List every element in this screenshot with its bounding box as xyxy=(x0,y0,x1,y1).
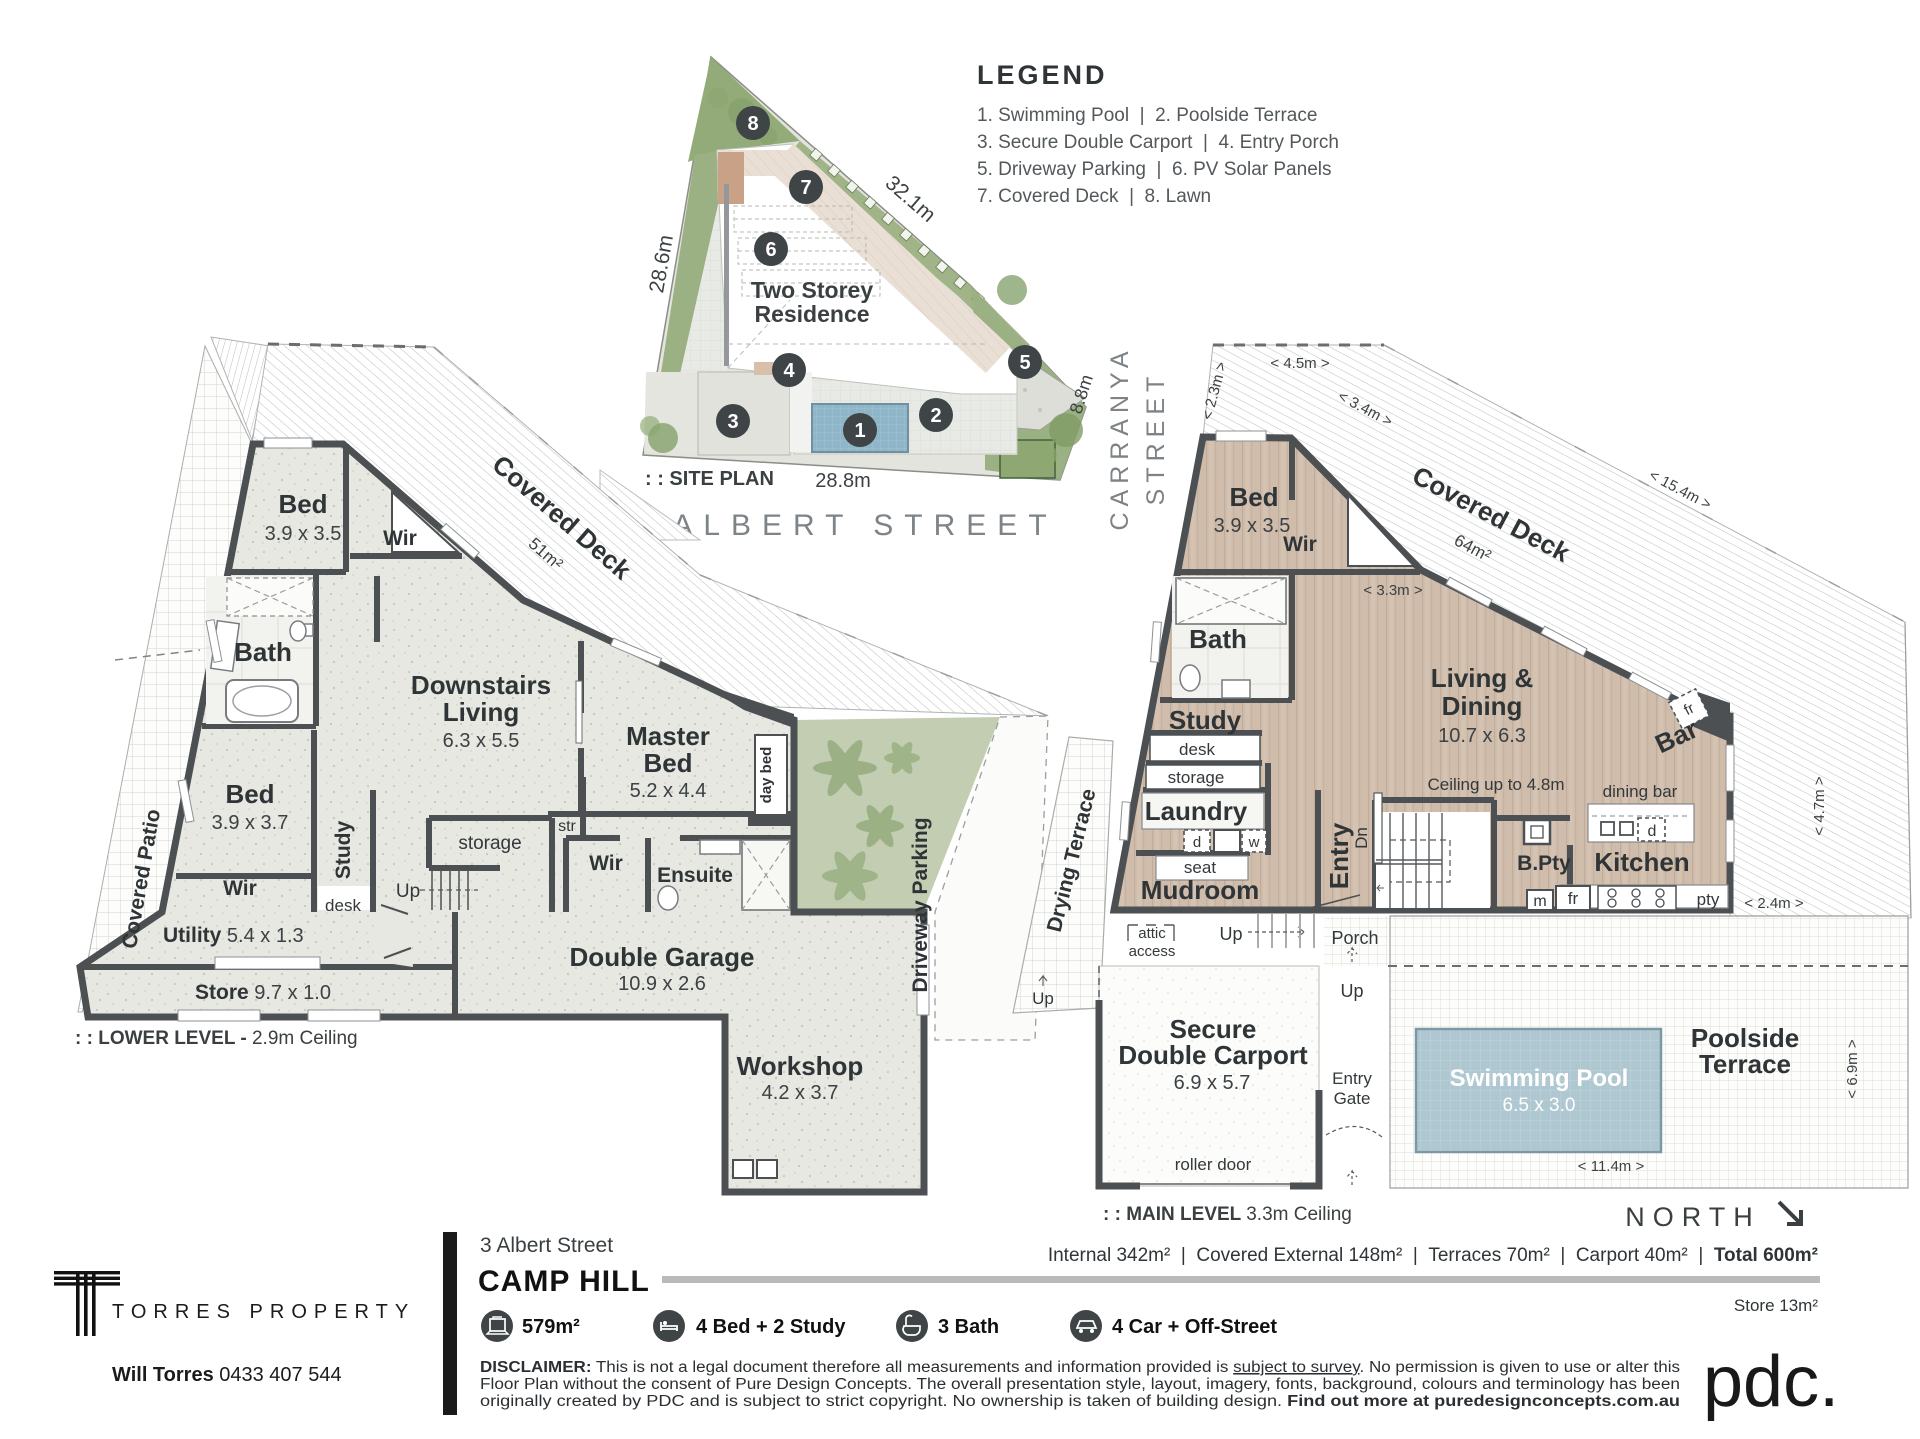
svg-text:Gate: Gate xyxy=(1334,1089,1371,1108)
svg-text:CAMP HILL: CAMP HILL xyxy=(478,1265,650,1298)
svg-text:Study: Study xyxy=(1169,705,1242,735)
svg-text:pdc.: pdc. xyxy=(1703,1342,1839,1422)
svg-text:Wir: Wir xyxy=(1283,533,1317,556)
svg-text:LEGEND: LEGEND xyxy=(977,60,1108,90)
svg-text:< 4.5m >: < 4.5m > xyxy=(1270,355,1329,372)
svg-text:Ensuite: Ensuite xyxy=(657,864,733,887)
svg-text:Internal 342m² | Covered Ext: Internal 342m² | Covered External 148m² … xyxy=(1048,1245,1818,1266)
svg-text:: : MAIN LEVEL 3.3m Ceiling: : : MAIN LEVEL 3.3m Ceiling xyxy=(1103,1204,1352,1225)
svg-text:Wir: Wir xyxy=(589,852,623,875)
svg-text:3. Secure Double Carport | 4: 3. Secure Double Carport | 4. Entry Porc… xyxy=(977,132,1339,153)
svg-text:3 Bath: 3 Bath xyxy=(938,1316,999,1338)
svg-text:3: 3 xyxy=(727,411,738,433)
svg-text:Porch: Porch xyxy=(1331,928,1378,948)
svg-text:Two Storey: Two Storey xyxy=(751,277,873,303)
svg-text:CARRANYA: CARRANYA xyxy=(1106,345,1134,530)
svg-text:10.7 x 6.3: 10.7 x 6.3 xyxy=(1438,725,1526,747)
svg-text:5. Driveway Parking | 6. PV: 5. Driveway Parking | 6. PV Solar Panels xyxy=(977,159,1331,180)
svg-text:day bed: day bed xyxy=(758,747,775,804)
svg-text:Wir: Wir xyxy=(223,877,257,900)
svg-text:DISCLAIMER: This is not a lega: DISCLAIMER: This is not a legal document… xyxy=(480,1359,1680,1376)
svg-text:B.Pty: B.Pty xyxy=(1517,852,1571,875)
svg-text:m: m xyxy=(1533,893,1546,910)
svg-text:4: 4 xyxy=(783,360,795,382)
svg-text:Floor Plan without the consent: Floor Plan without the consent of Pure D… xyxy=(480,1376,1680,1393)
svg-text:roller door: roller door xyxy=(1175,1155,1252,1174)
svg-text:< 4.7m >: < 4.7m > xyxy=(1811,776,1828,835)
svg-text:Wir: Wir xyxy=(383,527,417,550)
svg-text:dining bar: dining bar xyxy=(1603,782,1678,801)
svg-text:w: w xyxy=(1248,834,1260,851)
svg-text:7. Covered Deck | 8. Lawn: 7. Covered Deck | 8. Lawn xyxy=(977,186,1211,207)
svg-text:Swimming Pool: Swimming Pool xyxy=(1450,1065,1629,1092)
svg-text:Up: Up xyxy=(1219,924,1242,944)
svg-text:6.9 x 5.7: 6.9 x 5.7 xyxy=(1174,1072,1251,1094)
svg-text:Up: Up xyxy=(1340,981,1363,1001)
svg-text:1. Swimming Pool | 2. Poolsi: 1. Swimming Pool | 2. Poolside Terrace xyxy=(977,105,1317,126)
svg-text:4.2 x 3.7: 4.2 x 3.7 xyxy=(762,1082,839,1104)
svg-text:3 Albert Street: 3 Albert Street xyxy=(480,1234,613,1257)
svg-text:Bed: Bed xyxy=(643,748,692,778)
svg-text:pty: pty xyxy=(1697,890,1720,909)
svg-text:Bed: Bed xyxy=(225,779,274,809)
svg-text:storage: storage xyxy=(1168,768,1225,787)
svg-text:Double Garage: Double Garage xyxy=(570,942,755,972)
svg-text:4 Bed + 2 Study: 4 Bed + 2 Study xyxy=(696,1316,846,1338)
svg-text:originally created by PDC and: originally created by PDC and is subject… xyxy=(480,1393,1680,1410)
svg-text:storage: storage xyxy=(458,833,521,854)
svg-text:Downstairs: Downstairs xyxy=(411,670,551,700)
svg-text:Workshop: Workshop xyxy=(737,1051,864,1081)
svg-text:Up: Up xyxy=(396,881,420,902)
svg-text:d: d xyxy=(1648,823,1657,840)
svg-text:ALBERT STREET: ALBERT STREET xyxy=(672,509,1057,542)
svg-text:Bath: Bath xyxy=(234,637,292,667)
svg-text:3.9 x 3.5: 3.9 x 3.5 xyxy=(265,523,342,545)
svg-text:Laundry: Laundry xyxy=(1145,796,1248,826)
svg-text:8: 8 xyxy=(747,113,758,135)
svg-text:Ceiling up to 4.8m: Ceiling up to 4.8m xyxy=(1427,775,1564,794)
svg-text:Terrace: Terrace xyxy=(1699,1049,1791,1079)
svg-text:< 3.3m >: < 3.3m > xyxy=(1363,582,1422,599)
svg-text:Utility 5.4 x 1.3: Utility 5.4 x 1.3 xyxy=(163,924,304,947)
svg-text:5.2 x 4.4: 5.2 x 4.4 xyxy=(630,780,707,802)
svg-text:Living &: Living & xyxy=(1431,663,1534,693)
svg-text:Master: Master xyxy=(626,721,710,751)
svg-text:Residence: Residence xyxy=(754,301,869,327)
svg-text:579m²: 579m² xyxy=(522,1316,580,1338)
svg-text:STREET: STREET xyxy=(1142,371,1170,506)
svg-text:5: 5 xyxy=(1019,352,1030,374)
svg-text:attic: attic xyxy=(1138,925,1166,942)
svg-text:Store 9.7 x 1.0: Store 9.7 x 1.0 xyxy=(195,981,331,1004)
svg-text:< 11.4m >: < 11.4m > xyxy=(1578,1158,1645,1175)
svg-text:Dn: Dn xyxy=(1352,827,1371,849)
svg-text:Study: Study xyxy=(332,821,355,880)
svg-text:Bed: Bed xyxy=(1229,482,1278,512)
svg-text:access: access xyxy=(1129,943,1176,960)
svg-text:Entry: Entry xyxy=(1332,1069,1372,1088)
svg-text:: : LOWER LEVEL - 2.9m Ceiling: : : LOWER LEVEL - 2.9m Ceiling xyxy=(75,1028,358,1049)
svg-text:6.3 x 5.5: 6.3 x 5.5 xyxy=(443,730,520,752)
svg-text:Store 13m²: Store 13m² xyxy=(1734,1296,1818,1315)
svg-text:3.9 x 3.7: 3.9 x 3.7 xyxy=(212,812,289,834)
svg-text:Mudroom: Mudroom xyxy=(1141,875,1259,905)
svg-text:Double Carport: Double Carport xyxy=(1118,1040,1308,1070)
svg-text:Bed: Bed xyxy=(278,489,327,519)
svg-text:6: 6 xyxy=(765,239,776,261)
svg-text:7: 7 xyxy=(800,177,811,199)
svg-text:< 6.9m >: < 6.9m > xyxy=(1844,1039,1861,1098)
svg-text:< 2.4m >: < 2.4m > xyxy=(1744,895,1803,912)
svg-text:Entry: Entry xyxy=(1324,822,1354,889)
svg-text:Bath: Bath xyxy=(1189,624,1247,654)
svg-text:Kitchen: Kitchen xyxy=(1594,847,1689,877)
svg-text:str: str xyxy=(558,818,576,835)
svg-text:1: 1 xyxy=(854,420,865,442)
svg-text:NORTH: NORTH xyxy=(1625,1202,1761,1232)
svg-text:6.5 x 3.0: 6.5 x 3.0 xyxy=(1503,1095,1576,1116)
svg-text:Driveway Parking: Driveway Parking xyxy=(909,817,932,992)
svg-text:3.9 x 3.5: 3.9 x 3.5 xyxy=(1214,515,1291,537)
svg-text:fr: fr xyxy=(1568,889,1579,908)
svg-text:Living: Living xyxy=(443,697,520,727)
svg-text:28.8m: 28.8m xyxy=(815,470,871,492)
svg-text:Up: Up xyxy=(1032,989,1054,1008)
svg-text:10.9 x 2.6: 10.9 x 2.6 xyxy=(618,973,706,995)
svg-text:2: 2 xyxy=(930,405,941,427)
svg-text:desk: desk xyxy=(1179,740,1215,759)
svg-text:4 Car + Off-Street: 4 Car + Off-Street xyxy=(1112,1316,1277,1338)
svg-text:Will Torres 0433 407 544: Will Torres 0433 407 544 xyxy=(112,1364,342,1386)
svg-text:: : SITE PLAN: : : SITE PLAN xyxy=(645,468,774,490)
svg-text:TORRES PROPERTY: TORRES PROPERTY xyxy=(112,1301,415,1323)
svg-text:d: d xyxy=(1193,834,1201,851)
svg-text:Dining: Dining xyxy=(1442,691,1523,721)
svg-text:desk: desk xyxy=(325,896,361,915)
